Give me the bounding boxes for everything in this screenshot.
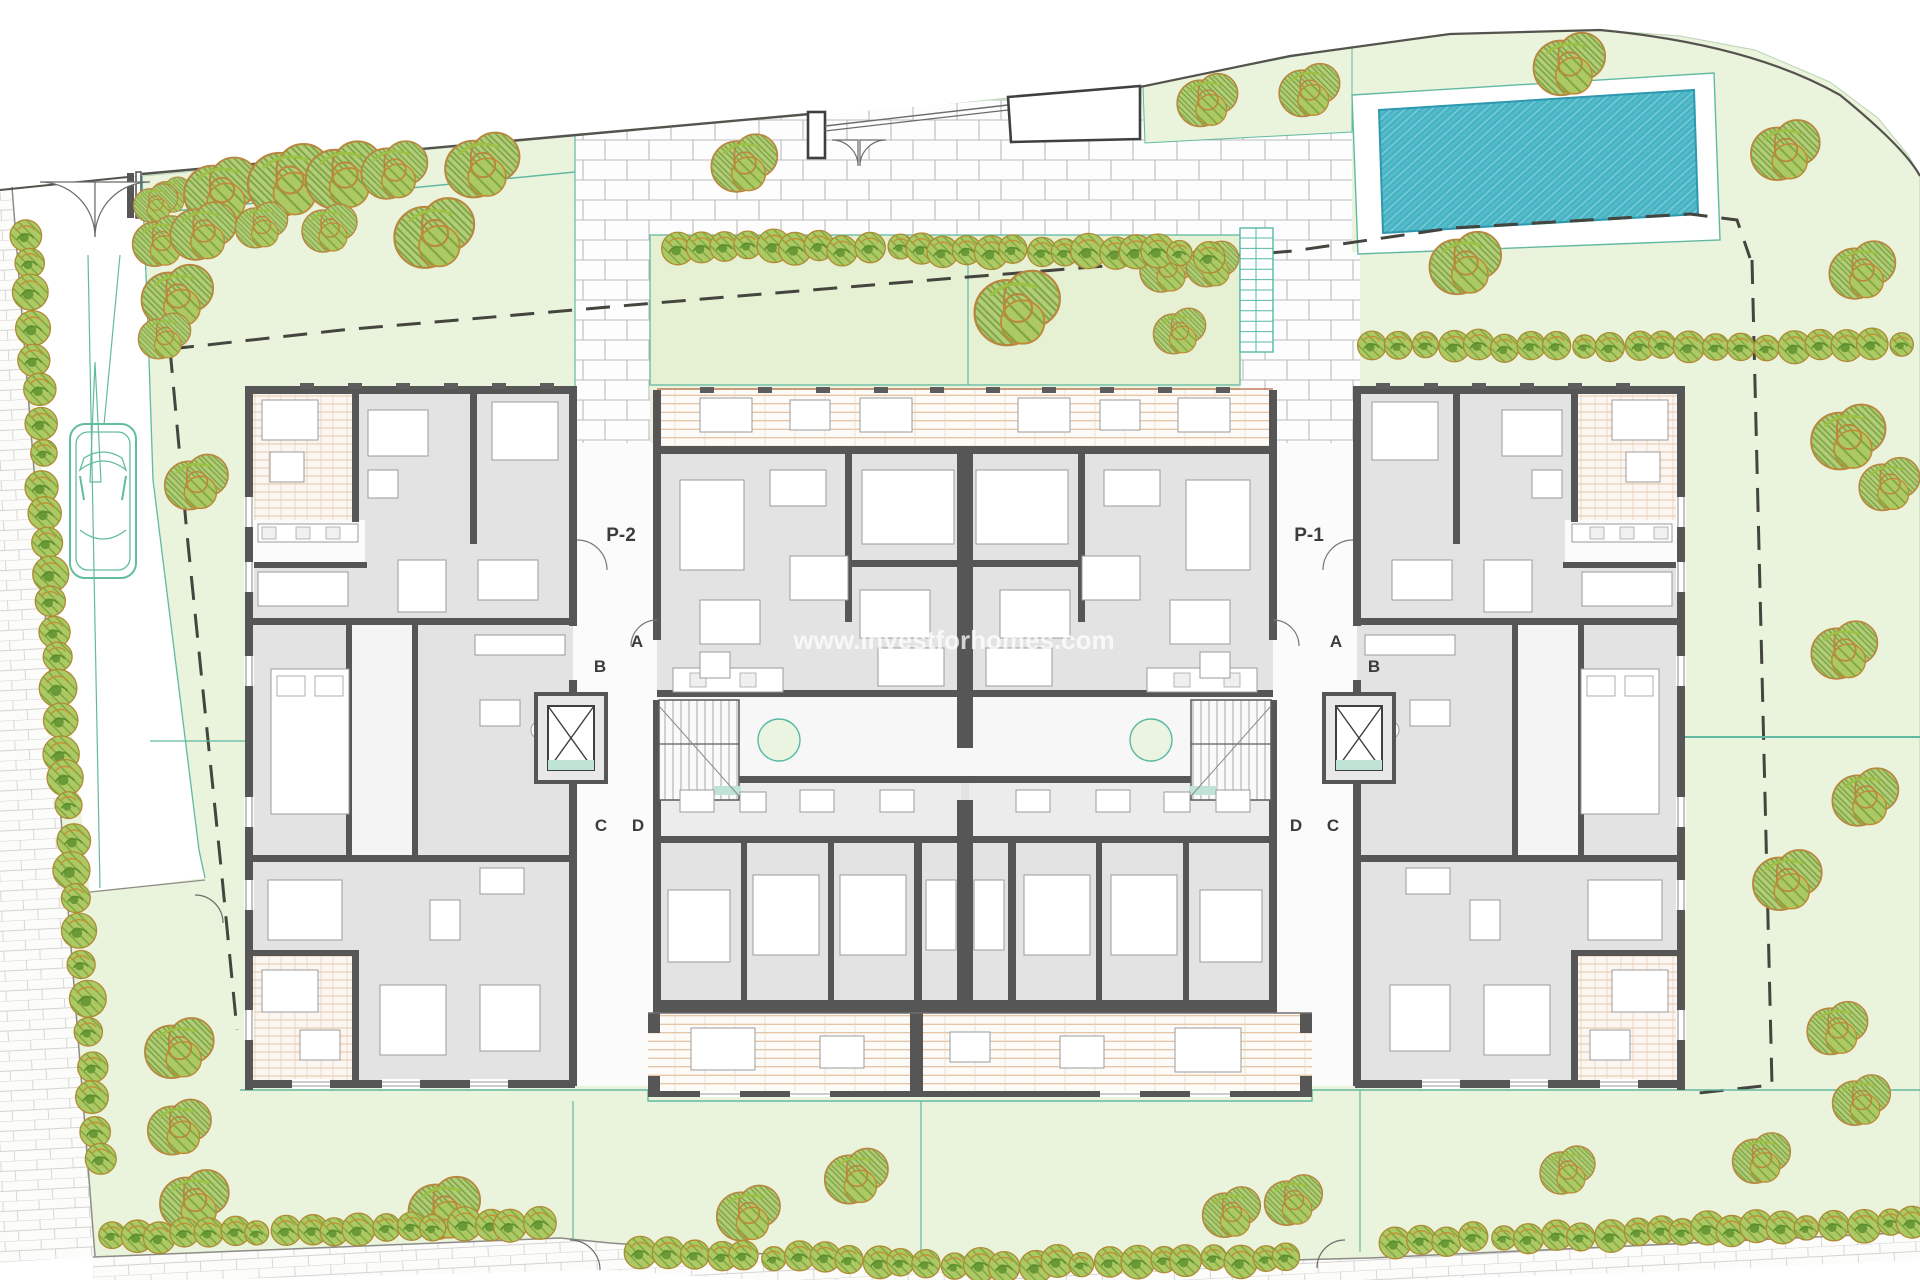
svg-text:B: B [594,657,606,676]
svg-text:C: C [1327,816,1339,835]
svg-text:C: C [595,816,607,835]
svg-text:P-1: P-1 [1294,525,1324,546]
svg-text:B: B [1368,657,1380,676]
svg-text:www.investforhomes.com: www.investforhomes.com [792,625,1114,655]
svg-text:D: D [632,816,644,835]
svg-text:P-2: P-2 [606,525,636,546]
svg-text:A: A [1330,632,1342,651]
svg-text:D: D [1290,816,1302,835]
svg-text:A: A [631,632,643,651]
